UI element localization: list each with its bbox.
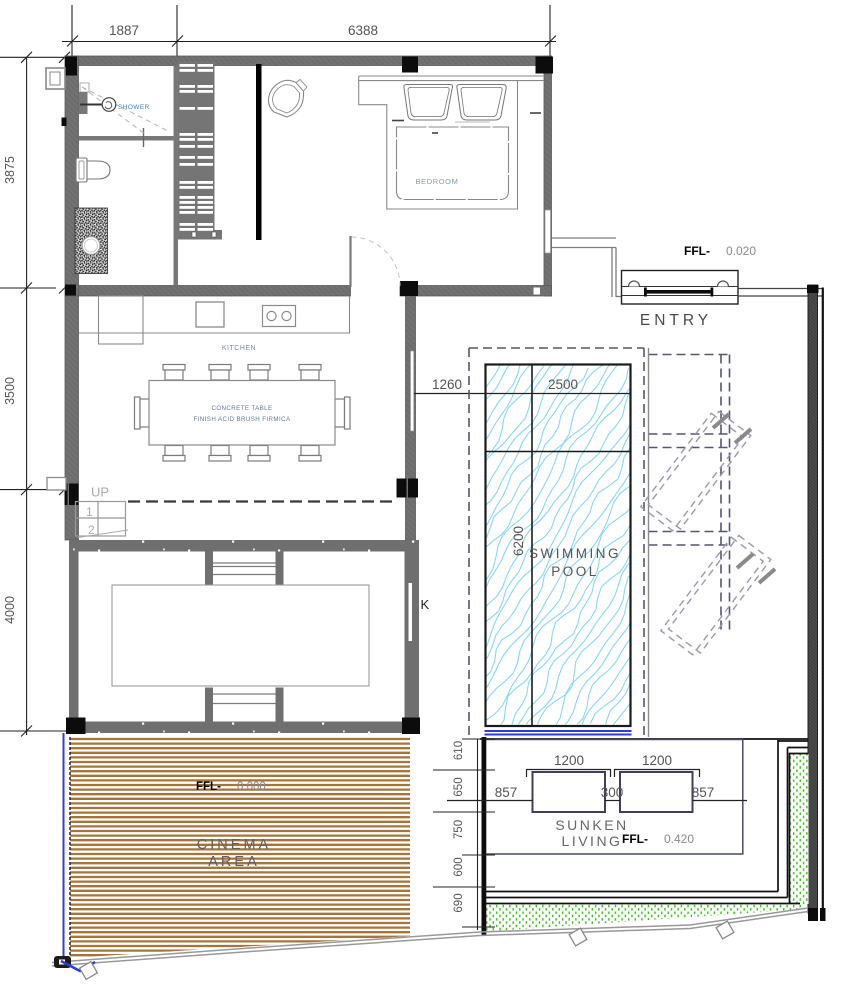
svg-text:FFL-: FFL-: [196, 781, 221, 793]
svg-text:2500: 2500: [548, 377, 578, 392]
svg-text:FFL-: FFL-: [622, 832, 648, 846]
svg-text:1200: 1200: [554, 753, 584, 768]
svg-text:600: 600: [453, 857, 465, 876]
svg-text:SUNKEN: SUNKEN: [555, 817, 628, 833]
svg-text:SHOWER: SHOWER: [118, 104, 150, 111]
svg-text:3500: 3500: [3, 377, 17, 405]
svg-text:UP: UP: [91, 485, 109, 500]
svg-text:690: 690: [453, 893, 465, 912]
svg-text:750: 750: [453, 820, 465, 839]
svg-text:610: 610: [453, 741, 465, 760]
svg-text:857: 857: [692, 785, 715, 800]
svg-text:1200: 1200: [642, 753, 672, 768]
svg-text:300: 300: [601, 785, 624, 800]
svg-text:FINISH ACID BRUSH FIRMICA: FINISH ACID BRUSH FIRMICA: [194, 416, 291, 423]
svg-text:SWIMMING: SWIMMING: [529, 546, 621, 561]
svg-text:1: 1: [86, 505, 93, 519]
svg-text:4000: 4000: [3, 596, 17, 624]
svg-text:POOL: POOL: [551, 564, 599, 579]
svg-text:6388: 6388: [348, 23, 378, 38]
svg-text:FFL-: FFL-: [684, 244, 710, 258]
svg-text:CINEMA: CINEMA: [197, 837, 271, 853]
svg-text:LIVING: LIVING: [562, 833, 623, 849]
svg-text:AREA: AREA: [208, 854, 260, 870]
svg-text:ENTRY: ENTRY: [640, 312, 712, 329]
svg-text:BEDROOM: BEDROOM: [416, 177, 459, 186]
svg-text:1887: 1887: [109, 23, 139, 38]
svg-text:KITCHEN: KITCHEN: [222, 345, 256, 352]
svg-text:3875: 3875: [3, 156, 17, 184]
svg-text:650: 650: [453, 777, 465, 796]
svg-text:857: 857: [495, 785, 518, 800]
svg-text:K: K: [421, 597, 430, 612]
svg-text:0.420: 0.420: [664, 832, 694, 846]
svg-text:0.020: 0.020: [726, 244, 756, 258]
svg-text:6200: 6200: [511, 526, 526, 556]
svg-text:CONCRETE TABLE: CONCRETE TABLE: [211, 405, 272, 412]
svg-text:0.000: 0.000: [237, 781, 266, 793]
svg-text:1260: 1260: [432, 377, 462, 392]
